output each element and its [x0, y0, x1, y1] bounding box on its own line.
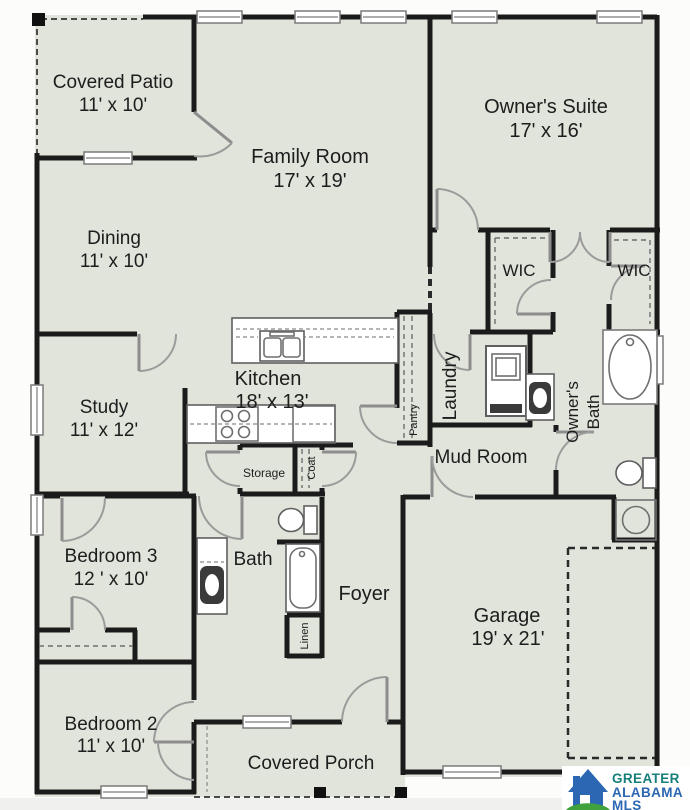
svg-text:Covered Porch: Covered Porch [248, 753, 375, 774]
svg-text:Bedroom 3: Bedroom 3 [65, 546, 158, 567]
svg-text:19' x 21': 19' x 21' [471, 628, 544, 650]
hall-bathtub-icon [286, 544, 320, 612]
owners-toilet-icon [616, 458, 656, 488]
svg-text:11' x 10': 11' x 10' [79, 95, 147, 116]
hall-toilet-icon [279, 506, 318, 534]
svg-text:Coat: Coat [306, 456, 318, 479]
window [31, 385, 43, 435]
room-wic-left: WIC [502, 261, 535, 280]
kitchen-island [232, 318, 398, 363]
svg-text:Laundry: Laundry [440, 351, 461, 420]
hall-bath-vanity [197, 538, 227, 614]
room-covered-porch: Covered Porch [248, 753, 375, 774]
floor-plan-svg: Covered Patio11' x 10' Family Room17' x … [0, 0, 690, 810]
window [84, 152, 132, 164]
logo-line1: GREATER [612, 771, 680, 786]
svg-text:Mud Room: Mud Room [435, 447, 528, 468]
garage-door-marker [443, 766, 501, 778]
svg-text:WIC: WIC [502, 261, 535, 280]
svg-text:Bath: Bath [233, 549, 272, 570]
room-kitchen: Kitchen18' x 13' [235, 368, 309, 413]
svg-text:11' x 10': 11' x 10' [80, 251, 148, 272]
owners-bath-vanity [526, 374, 554, 420]
porch-post [314, 787, 326, 798]
svg-text:Kitchen: Kitchen [235, 368, 302, 390]
room-laundry: Laundry [440, 351, 461, 420]
room-foyer: Foyer [338, 583, 389, 605]
window [31, 495, 43, 535]
svg-text:Garage: Garage [474, 605, 541, 627]
svg-text:Owner's: Owner's [563, 381, 582, 443]
svg-text:Covered Patio: Covered Patio [53, 72, 173, 93]
svg-text:11' x 12': 11' x 12' [70, 420, 138, 441]
porch-post [395, 787, 407, 798]
svg-text:WIC: WIC [617, 261, 650, 280]
window [361, 11, 406, 23]
room-wic-right: WIC [617, 261, 650, 280]
window [243, 716, 291, 728]
mls-logo: GREATER ALABAMA MLS [562, 766, 690, 810]
window [295, 11, 340, 23]
logo-line3: MLS [612, 798, 642, 810]
svg-text:17' x 19': 17' x 19' [273, 170, 346, 192]
room-garage: Garage19' x 21' [471, 605, 544, 650]
owners-bathtub-icon [603, 330, 657, 404]
svg-text:Pantry: Pantry [408, 404, 420, 436]
svg-text:Storage: Storage [243, 466, 285, 480]
room-coat: Coat [306, 456, 318, 479]
svg-text:17' x 16': 17' x 16' [509, 120, 582, 142]
svg-text:Bedroom 2: Bedroom 2 [65, 714, 158, 735]
svg-text:Dining: Dining [87, 228, 141, 249]
svg-text:Foyer: Foyer [338, 583, 389, 605]
washer-dryer-icon [486, 346, 526, 416]
window [197, 11, 242, 23]
room-bath: Bath [233, 549, 272, 570]
floor-plan-image: Covered Patio11' x 10' Family Room17' x … [0, 0, 690, 810]
svg-text:11' x 10': 11' x 10' [77, 736, 145, 757]
svg-text:Family Room: Family Room [251, 146, 369, 168]
room-bedroom2: Bedroom 211' x 10' [65, 714, 158, 757]
room-mud: Mud Room [435, 447, 528, 468]
window [101, 786, 147, 798]
svg-text:Linen: Linen [299, 623, 311, 650]
room-linen: Linen [299, 623, 311, 650]
svg-text:Bath: Bath [584, 395, 603, 430]
svg-text:18' x 13': 18' x 13' [235, 391, 308, 413]
svg-text:Study: Study [80, 397, 129, 418]
window [597, 11, 642, 23]
svg-text:12 ' x 10': 12 ' x 10' [74, 569, 149, 590]
kitchen-sink-icon [260, 331, 304, 361]
window [452, 11, 497, 23]
svg-text:Owner's Suite: Owner's Suite [484, 96, 608, 118]
room-pantry: Pantry [408, 404, 420, 436]
room-storage: Storage [243, 466, 285, 480]
